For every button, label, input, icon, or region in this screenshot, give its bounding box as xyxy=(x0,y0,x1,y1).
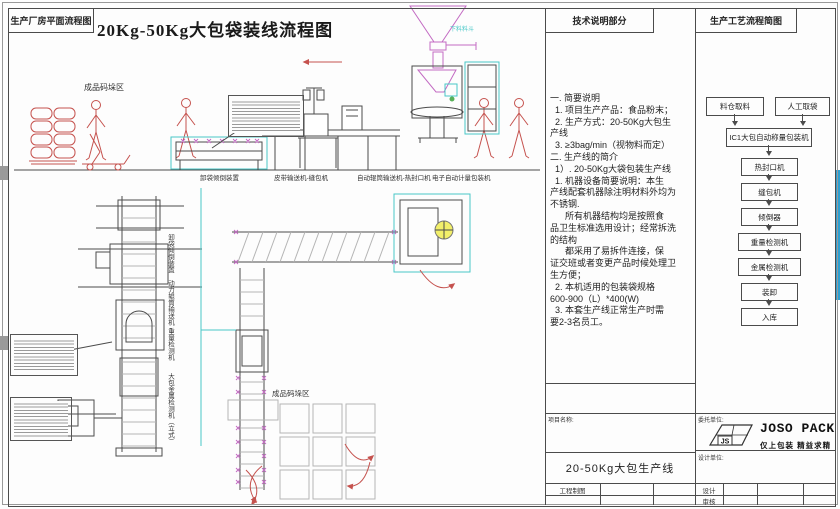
divider xyxy=(723,483,724,505)
column-divider xyxy=(545,8,546,505)
flow-arrow xyxy=(768,145,769,154)
divider xyxy=(757,483,758,505)
tech-notes-line: 产线 xyxy=(550,128,692,140)
designer-label: 设计单位: xyxy=(698,453,724,462)
flow-arrow xyxy=(768,274,769,279)
divider xyxy=(545,495,835,496)
tech-notes-line: 证交班或者变更产品时候处理卫 xyxy=(550,258,692,270)
divider xyxy=(803,483,804,505)
hopper-label: 下料料斗 xyxy=(450,24,474,33)
process-chart-header-box: 生产工艺流程简图 xyxy=(695,8,797,33)
flow-arrow xyxy=(734,114,735,124)
joso-logo: JS xyxy=(704,421,756,449)
machine-label-metal-detector: 大包金属检测机（立式） xyxy=(166,373,173,445)
machine-label-tilter: 卸袋倾倒装置 xyxy=(200,172,239,182)
flow-arrow xyxy=(768,249,769,254)
flow-node-auto-packer: IC1大包自动称量包装机 xyxy=(726,128,812,147)
stack-area-label-bottom: 成品码垛区 xyxy=(272,388,310,399)
tech-notes-line: 600-900（L）*400(W) xyxy=(550,294,692,306)
tech-notes-header: 技术说明部分 xyxy=(572,14,626,27)
flow-arrow xyxy=(768,299,769,304)
flow-node-metal-detector: 金属检测机 xyxy=(738,258,801,276)
machine-label-power-roller: 动力辊筒输送机 xyxy=(166,280,173,326)
machine-label-belt-sewing: 皮带输送机-缝包机 xyxy=(274,172,328,182)
flow-node-checkweigher: 重量检测机 xyxy=(738,233,801,251)
tech-notes-line: 3. ≥3bag/min（视物料而定） xyxy=(550,140,692,152)
machine-label-packer: 电子自动计量包装机 xyxy=(432,172,491,182)
tech-notes-line: 一. 简要说明 xyxy=(550,93,692,105)
note-box xyxy=(10,397,72,441)
review-row-label: 审核 xyxy=(695,496,723,505)
tech-notes-line: 都采用了易拆件连接，保 xyxy=(550,246,692,258)
flow-arrow xyxy=(768,199,769,204)
machine-label-vertical-tilter: 卸袋倾倒装置 xyxy=(166,234,173,273)
flow-node-heat-sealer: 热封口机 xyxy=(741,158,798,176)
column-divider xyxy=(695,8,696,505)
tech-notes-line: 3. 本套生产线正常生产时需 xyxy=(550,305,692,317)
flow-node-tilter: 倾倒器 xyxy=(741,208,798,226)
divider xyxy=(545,383,695,384)
tech-notes-line: 品卫生标准选用设计；经常拆洗 xyxy=(550,223,692,235)
page-title: 20Kg-50Kg大包袋装线流程图 xyxy=(97,16,333,41)
tech-notes-text: 一. 简要说明 1. 项目生产产品：食品粉末； 2. 生产方式：20-50Kg大… xyxy=(550,93,692,329)
divider xyxy=(545,413,835,414)
note-box xyxy=(228,95,304,137)
tech-notes-header-box: 技术说明部分 xyxy=(545,8,654,33)
area-label-box: 生产厂房平面流程图 xyxy=(8,8,94,33)
process-chart-header: 生产工艺流程简图 xyxy=(710,14,782,27)
divider xyxy=(653,483,654,505)
project-name-label: 项目名称: xyxy=(548,415,574,424)
tech-notes-line: 1. 机器设备简要说明：本生 xyxy=(550,176,692,188)
machine-label-checkweigher: 重量检测机 xyxy=(166,328,173,361)
drafting-label: 工程制图 xyxy=(545,484,600,495)
brand-slogan: 仅上包装 精益求精 xyxy=(760,440,831,451)
project-name: 20-50Kg大包生产线 xyxy=(545,460,695,476)
tech-notes-line: 生方便； xyxy=(550,270,692,282)
divider xyxy=(600,483,601,505)
flow-node-sewing: 缝包机 xyxy=(741,183,798,201)
stack-area-label-top: 成品码垛区 xyxy=(84,82,124,93)
tech-notes-line: 不锈钢. xyxy=(550,199,692,211)
tech-notes-line: 1. 项目生产产品：食品粉末； xyxy=(550,105,692,117)
tech-notes-line: 2. 生产方式：20-50Kg大包生 xyxy=(550,117,692,129)
tech-notes-line: 产线配套机器除注明材料外均为 xyxy=(550,187,692,199)
tech-notes-line: 2. 本机适用的包装袋规格 xyxy=(550,282,692,294)
flow-arrow xyxy=(802,114,803,124)
tech-notes-line: 1）. 20-50Kg大袋包装生产线 xyxy=(550,164,692,176)
note-box xyxy=(10,334,78,376)
brand-name: JOSO PACK xyxy=(760,421,835,436)
area-label: 生产厂房平面流程图 xyxy=(10,14,91,27)
divider xyxy=(545,452,695,453)
tech-notes-line: 所有机器结构均是按照食 xyxy=(550,211,692,223)
tech-notes-line: 二. 生产线的简介 xyxy=(550,152,692,164)
flow-node-silo-pickup: 料仓取料 xyxy=(706,97,764,116)
logo-text: JS xyxy=(721,439,730,446)
tech-notes-line: 的结构 xyxy=(550,235,692,247)
flow-node-warehouse: 入库 xyxy=(741,308,798,326)
machine-label-roller-sealer: 自动辊筒输送机-热封口机 xyxy=(357,172,431,182)
drawing-sheet: 生产厂房平面流程图 技术说明部分 生产工艺流程简图 20Kg-50Kg大包袋装线… xyxy=(0,0,840,509)
flow-node-loading: 装卸 xyxy=(741,283,798,301)
tech-notes-line: 要2-3名员工。 xyxy=(550,317,692,329)
flow-arrow xyxy=(768,224,769,229)
design-row-label: 设计 xyxy=(695,484,723,495)
flow-arrow xyxy=(768,174,769,179)
